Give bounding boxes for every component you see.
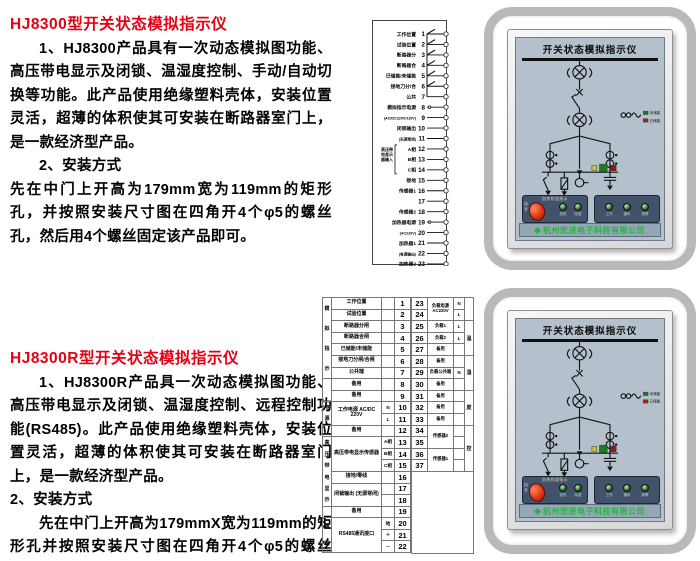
knob-labels: 自手 [524, 482, 528, 493]
led-unit: 除湿 [574, 484, 582, 498]
svg-text:(无源常闭): (无源常闭) [399, 136, 417, 141]
device-bezel: 开关状态模拟指示仪 [507, 310, 673, 530]
heater-control-cluster: 加热除湿指示 自手 加热 除湿 [522, 476, 588, 504]
svg-text:21: 21 [418, 240, 425, 247]
device-panel: 开关状态模拟指示仪 [515, 37, 665, 241]
svg-text:加热器2: 加热器2 [398, 261, 416, 266]
section-hj8300: HJ8300型开关状态模拟指示仪 1、HJ8300产品具有一次动态模拟图功能、高… [10, 12, 332, 249]
comm-led [623, 484, 631, 492]
svg-text:1: 1 [422, 31, 426, 38]
svg-text:试验位置: 试验位置 [397, 41, 416, 48]
svg-text:7: 7 [422, 94, 426, 101]
legend-red-led [643, 400, 648, 403]
capacitor-icon [604, 453, 615, 465]
fault-led [641, 484, 649, 492]
svg-text:传感器2: 传感器2 [398, 208, 416, 215]
svg-text:16: 16 [418, 188, 425, 195]
svg-text:8: 8 [422, 104, 426, 111]
heater-control-cluster: 加热除湿指示 自手 加热 除湿 [522, 195, 588, 223]
svg-text:接地: 接地 [406, 177, 416, 184]
legend-uncharged-label: 未储能 [649, 391, 660, 396]
panel-title: 开关状态模拟指示仪 [516, 42, 664, 56]
section1-paragraph-2: 2、安装方式 [10, 155, 332, 178]
mode-knob [526, 200, 547, 223]
svg-text:23: 23 [418, 261, 425, 266]
disconnector-icon [572, 95, 580, 114]
svg-text:6: 6 [422, 83, 426, 90]
brand-text: 杭州宏进电子科技有限公司 [543, 225, 645, 236]
svg-text:接地刀分/合: 接地刀分/合 [391, 83, 417, 90]
svg-text:B相: B相 [408, 156, 416, 163]
status-cluster: 工作 通讯 故障 [594, 476, 660, 504]
section1-paragraph-3: 先在中门上开高为179mm宽为119mm的矩形孔，并按照安装尺寸图在四角开4个φ… [10, 179, 332, 249]
device-bezel: 开关状态模拟指示仪 [507, 29, 673, 249]
svg-text:闭锁输出: 闭锁输出 [397, 125, 416, 132]
svg-text:17: 17 [418, 198, 425, 205]
svg-text:10: 10 [418, 125, 425, 132]
svg-text:19: 19 [418, 219, 425, 226]
svg-text:(有源输出): (有源输出) [399, 251, 417, 256]
work-led [605, 203, 613, 211]
cluster-header: 加热除湿指示 [523, 478, 587, 483]
spring-icon [632, 394, 641, 398]
device-panel: 开关状态模拟指示仪 [515, 318, 665, 522]
led-unit: 故障 [641, 203, 649, 217]
spring-icon [632, 113, 641, 117]
svg-text:14: 14 [418, 167, 425, 174]
led-unit: 加热 [559, 484, 567, 498]
svg-text:断路器分: 断路器分 [397, 52, 416, 59]
svg-text:已储能/未储能: 已储能/未储能 [386, 73, 416, 80]
terminal-diagram-svg: 1工作位置2试验位置3断路器分4断路器合5已储能/未储能6接地刀分/合7公共8模… [372, 20, 450, 266]
svg-text:4: 4 [422, 63, 426, 70]
legend-red-led [643, 119, 648, 122]
section2-paragraph-3: 先在中门上开高为179mmX宽为119mm的矩形孔并按照安装尺寸图在四角开4个φ… [10, 513, 332, 561]
wiring-table-right: 23负载电源AC220VN24L25负载1L温26负载2L27备用28备用湿29… [411, 297, 474, 554]
panel-title: 开关状态模拟指示仪 [516, 323, 664, 337]
red-led [610, 165, 616, 171]
svg-text:11: 11 [418, 136, 425, 143]
section2-paragraph-1: 1、HJ8300R产品具一次动态模拟图功能、高压带电显示及闭锁、温湿度控制、远程… [10, 372, 332, 489]
green-led [600, 164, 608, 172]
diamond-icon [534, 507, 541, 514]
svg-text:13: 13 [418, 157, 425, 164]
legend-green-led [643, 392, 648, 395]
led-unit: 故障 [641, 484, 649, 498]
status-cluster: 工作 通讯 故障 [594, 195, 660, 223]
svg-text:器输入: 器输入 [380, 156, 393, 162]
led-unit: 通讯 [623, 484, 631, 498]
svg-text:5: 5 [422, 73, 426, 80]
pt-icon [575, 459, 584, 468]
heat-led [559, 203, 567, 211]
svg-text:3: 3 [422, 52, 426, 59]
legend-uncharged-label: 未储能 [649, 110, 660, 115]
svg-text:15: 15 [418, 178, 425, 185]
svg-text:9: 9 [422, 115, 426, 122]
legend-green-led [643, 111, 648, 114]
terminal-diagram: 1工作位置2试验位置3断路器分4断路器合5已储能/未储能6接地刀分/合7公共8模… [372, 20, 450, 271]
led-unit: 除湿 [574, 203, 582, 217]
led-unit: 工作 [605, 203, 613, 217]
install-wiring-table: 模拟指示工作位置1试验位置2断路器分闸3断路器合闸4已储能/未储能5接地刀分闸/… [322, 297, 474, 554]
led-unit: 加热 [559, 203, 567, 217]
dehumidify-led [574, 484, 582, 492]
svg-text:公共: 公共 [406, 94, 416, 101]
svg-text:22: 22 [418, 251, 425, 258]
led-unit: 通讯 [623, 203, 631, 217]
svg-text:传感器1: 传感器1 [398, 188, 416, 195]
section1-paragraph-1: 1、HJ8300产品具有一次动态模拟图功能、高压带电显示及闭锁、温湿度控制、手动… [10, 38, 332, 155]
fault-led [641, 203, 649, 211]
wiring-table-left: 模拟指示工作位置1试验位置2断路器分闸3断路器合闸4已储能/未储能5接地刀分闸/… [322, 297, 411, 553]
yellow-led [592, 166, 597, 171]
capacitor-icon [604, 172, 615, 184]
mimic-diagram: 未储能 已储能 [516, 339, 664, 477]
svg-text:加热器电源: 加热器电源 [391, 219, 416, 226]
svg-text:模拟指示电源: 模拟指示电源 [387, 104, 416, 111]
legend-charged-label: 已储能 [649, 118, 660, 123]
svg-text:C相: C相 [408, 167, 416, 174]
brand-strip: 杭州宏进电子科技有限公司 [519, 504, 661, 518]
knob-labels: 自手 [524, 201, 528, 212]
incomer-line [573, 60, 586, 66]
svg-text:12: 12 [418, 146, 425, 153]
product-photo-2: 开关状态模拟指示仪 [484, 288, 696, 554]
pt-icon [575, 178, 584, 187]
brand-text: 杭州宏进电子科技有限公司 [543, 506, 645, 517]
brand-strip: 杭州宏进电子科技有限公司 [519, 223, 661, 237]
svg-text:(AC/DC220V/110V): (AC/DC220V/110V) [384, 116, 417, 120]
svg-text:A相: A相 [408, 146, 416, 153]
section1-title: HJ8300型开关状态模拟指示仪 [10, 12, 332, 34]
section2-title: HJ8300R型开关状态模拟指示仪 [10, 346, 332, 368]
heat-led [559, 484, 567, 492]
section-hj8300r: HJ8300R型开关状态模拟指示仪 1、HJ8300R产品具一次动态模拟图功能、… [10, 346, 332, 561]
svg-text:(AC220V): (AC220V) [400, 231, 417, 235]
mode-knob [526, 481, 547, 504]
comm-led [623, 203, 631, 211]
svg-text:断路器合: 断路器合 [397, 62, 416, 69]
svg-text:加热器1: 加热器1 [398, 240, 416, 247]
mimic-diagram: 未储能 已储能 [516, 58, 664, 196]
led-unit: 工作 [605, 484, 613, 498]
legend-charged-label: 已储能 [649, 399, 660, 404]
work-led [605, 484, 613, 492]
svg-text:2: 2 [422, 42, 426, 49]
yellow-led [592, 447, 597, 452]
dehumidify-led [574, 203, 582, 211]
diamond-icon [534, 226, 541, 233]
disconnector-icon [572, 376, 580, 395]
green-led [600, 445, 608, 453]
section2-paragraph-2: 2、安装方式 [10, 489, 332, 512]
svg-text:20: 20 [418, 230, 425, 237]
svg-text:工作位置: 工作位置 [397, 31, 416, 38]
red-led [610, 446, 616, 452]
catalog-page: HJ8300型开关状态模拟指示仪 1、HJ8300产品具有一次动态模拟图功能、高… [0, 0, 700, 561]
cluster-header: 加热除湿指示 [523, 197, 587, 202]
svg-text:18: 18 [418, 209, 425, 216]
product-photo-1: 开关状态模拟指示仪 [484, 7, 696, 270]
